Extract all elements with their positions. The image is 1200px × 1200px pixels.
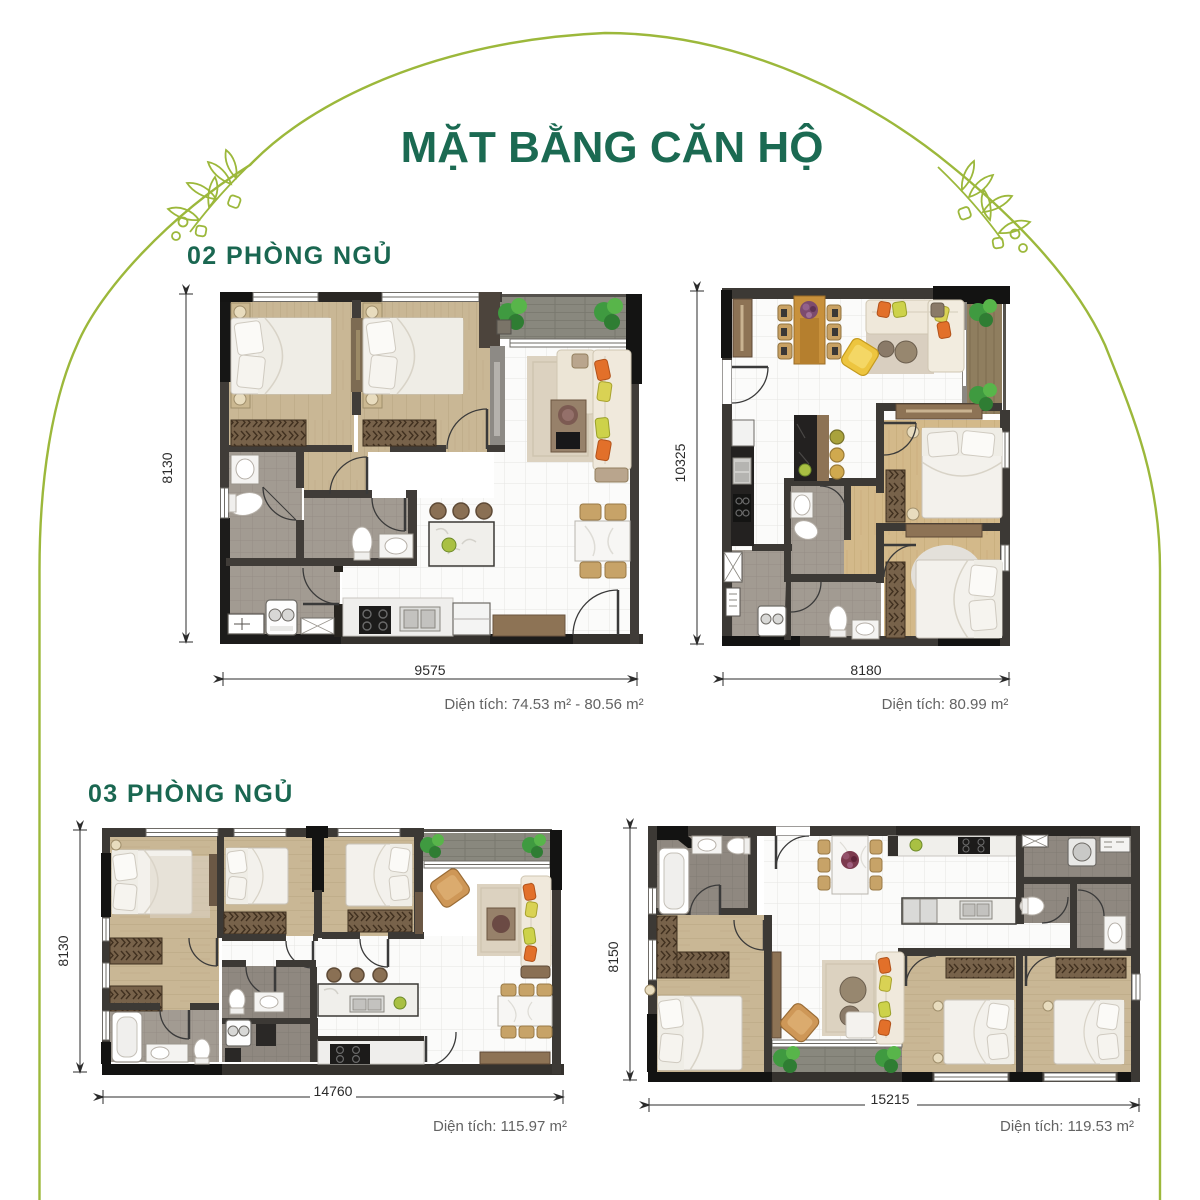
svg-text:8130: 8130 <box>55 935 71 966</box>
svg-text:8180: 8180 <box>850 662 881 678</box>
svg-text:Diện tích: 119.53 m²: Diện tích: 119.53 m² <box>1000 1118 1134 1135</box>
svg-text:15215: 15215 <box>871 1091 910 1107</box>
svg-text:10325: 10325 <box>672 443 688 482</box>
svg-text:Diện tích: 115.97 m²: Diện tích: 115.97 m² <box>433 1118 567 1135</box>
svg-text:03 PHÒNG NGỦ: 03 PHÒNG NGỦ <box>88 778 294 808</box>
svg-text:8130: 8130 <box>159 452 175 483</box>
svg-text:02 PHÒNG NGỦ: 02 PHÒNG NGỦ <box>187 240 393 270</box>
svg-text:14760: 14760 <box>314 1083 353 1099</box>
svg-text:9575: 9575 <box>414 662 445 678</box>
svg-text:MẶT BẰNG CĂN HỘ: MẶT BẰNG CĂN HỘ <box>401 121 824 172</box>
svg-text:Diện tích: 74.53 m² - 80.56 m²: Diện tích: 74.53 m² - 80.56 m² <box>444 696 643 713</box>
svg-text:Diện tích: 80.99 m²: Diện tích: 80.99 m² <box>882 696 1009 713</box>
svg-text:8150: 8150 <box>605 941 621 972</box>
